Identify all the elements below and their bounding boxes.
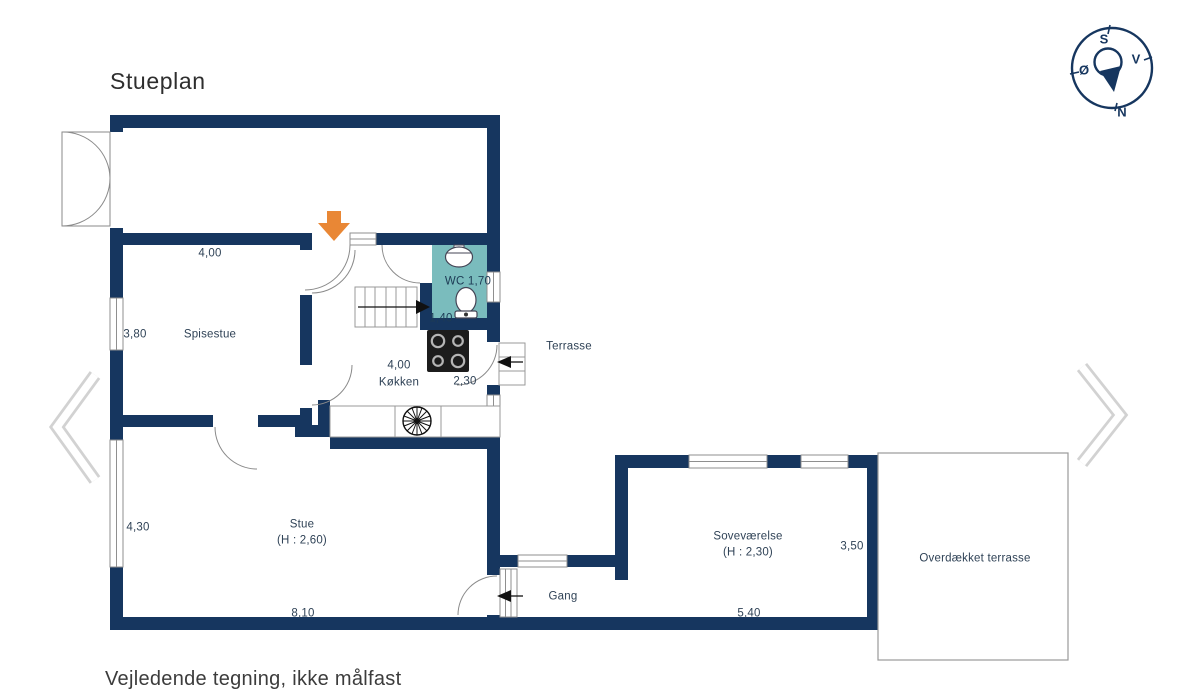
floorplan-page: Stueplan 4,00 3,80 Spisestue WC 1,70 1,4… <box>0 0 1179 679</box>
stove-icon <box>427 330 469 372</box>
room-height-stue: (H : 2,60) <box>277 534 327 549</box>
compass-south-label: S <box>1100 32 1109 47</box>
compass-east-label: Ø <box>1079 63 1089 78</box>
entrance-arrow-icon <box>318 211 350 241</box>
page-title: Stueplan <box>110 68 206 95</box>
dim-stue-left: 4,30 <box>126 521 149 536</box>
prev-image-button[interactable] <box>40 365 110 490</box>
chevron-left-icon <box>57 375 95 480</box>
sink-icon <box>403 407 431 435</box>
room-label-stue: Stue <box>290 518 314 533</box>
chevron-right-icon <box>1082 367 1120 463</box>
dim-spisestue-top: 4,00 <box>198 247 221 262</box>
double-door <box>62 132 110 226</box>
compass-north-label: N <box>1117 105 1126 120</box>
dim-sovevaerelse-right: 3,50 <box>840 540 863 555</box>
room-label-spisestue: Spisestue <box>184 328 236 343</box>
dim-spisestue-left: 3,80 <box>123 328 146 343</box>
staircase <box>355 287 430 327</box>
room-label-koekken: Køkken <box>379 376 419 391</box>
dim-stue-bottom: 8,10 <box>291 607 314 622</box>
kitchen-counter <box>330 406 500 437</box>
room-height-sovevaerelse: (H : 2,30) <box>723 546 773 561</box>
dim-koekken-right: 2,30 <box>453 375 476 390</box>
room-label-sovevaerelse: Soveværelse <box>713 530 782 545</box>
dim-wc: 1,40 <box>429 312 452 327</box>
toilet-icon <box>455 288 477 319</box>
room-label-wc: WC 1,70 <box>445 275 491 290</box>
room-label-overdaekket-terrasse: Overdækket terrasse <box>919 552 1030 567</box>
compass-west-label: V <box>1132 52 1141 67</box>
dim-koekken-top: 4,00 <box>387 359 410 374</box>
room-label-terrasse: Terrasse <box>546 340 592 355</box>
room-label-gang: Gang <box>549 590 578 605</box>
dim-sovevaerelse-bottom: 5,40 <box>737 607 760 622</box>
next-image-button[interactable] <box>1068 355 1138 480</box>
footer-note: Vejledende tegning, ikke målfast <box>105 668 401 691</box>
